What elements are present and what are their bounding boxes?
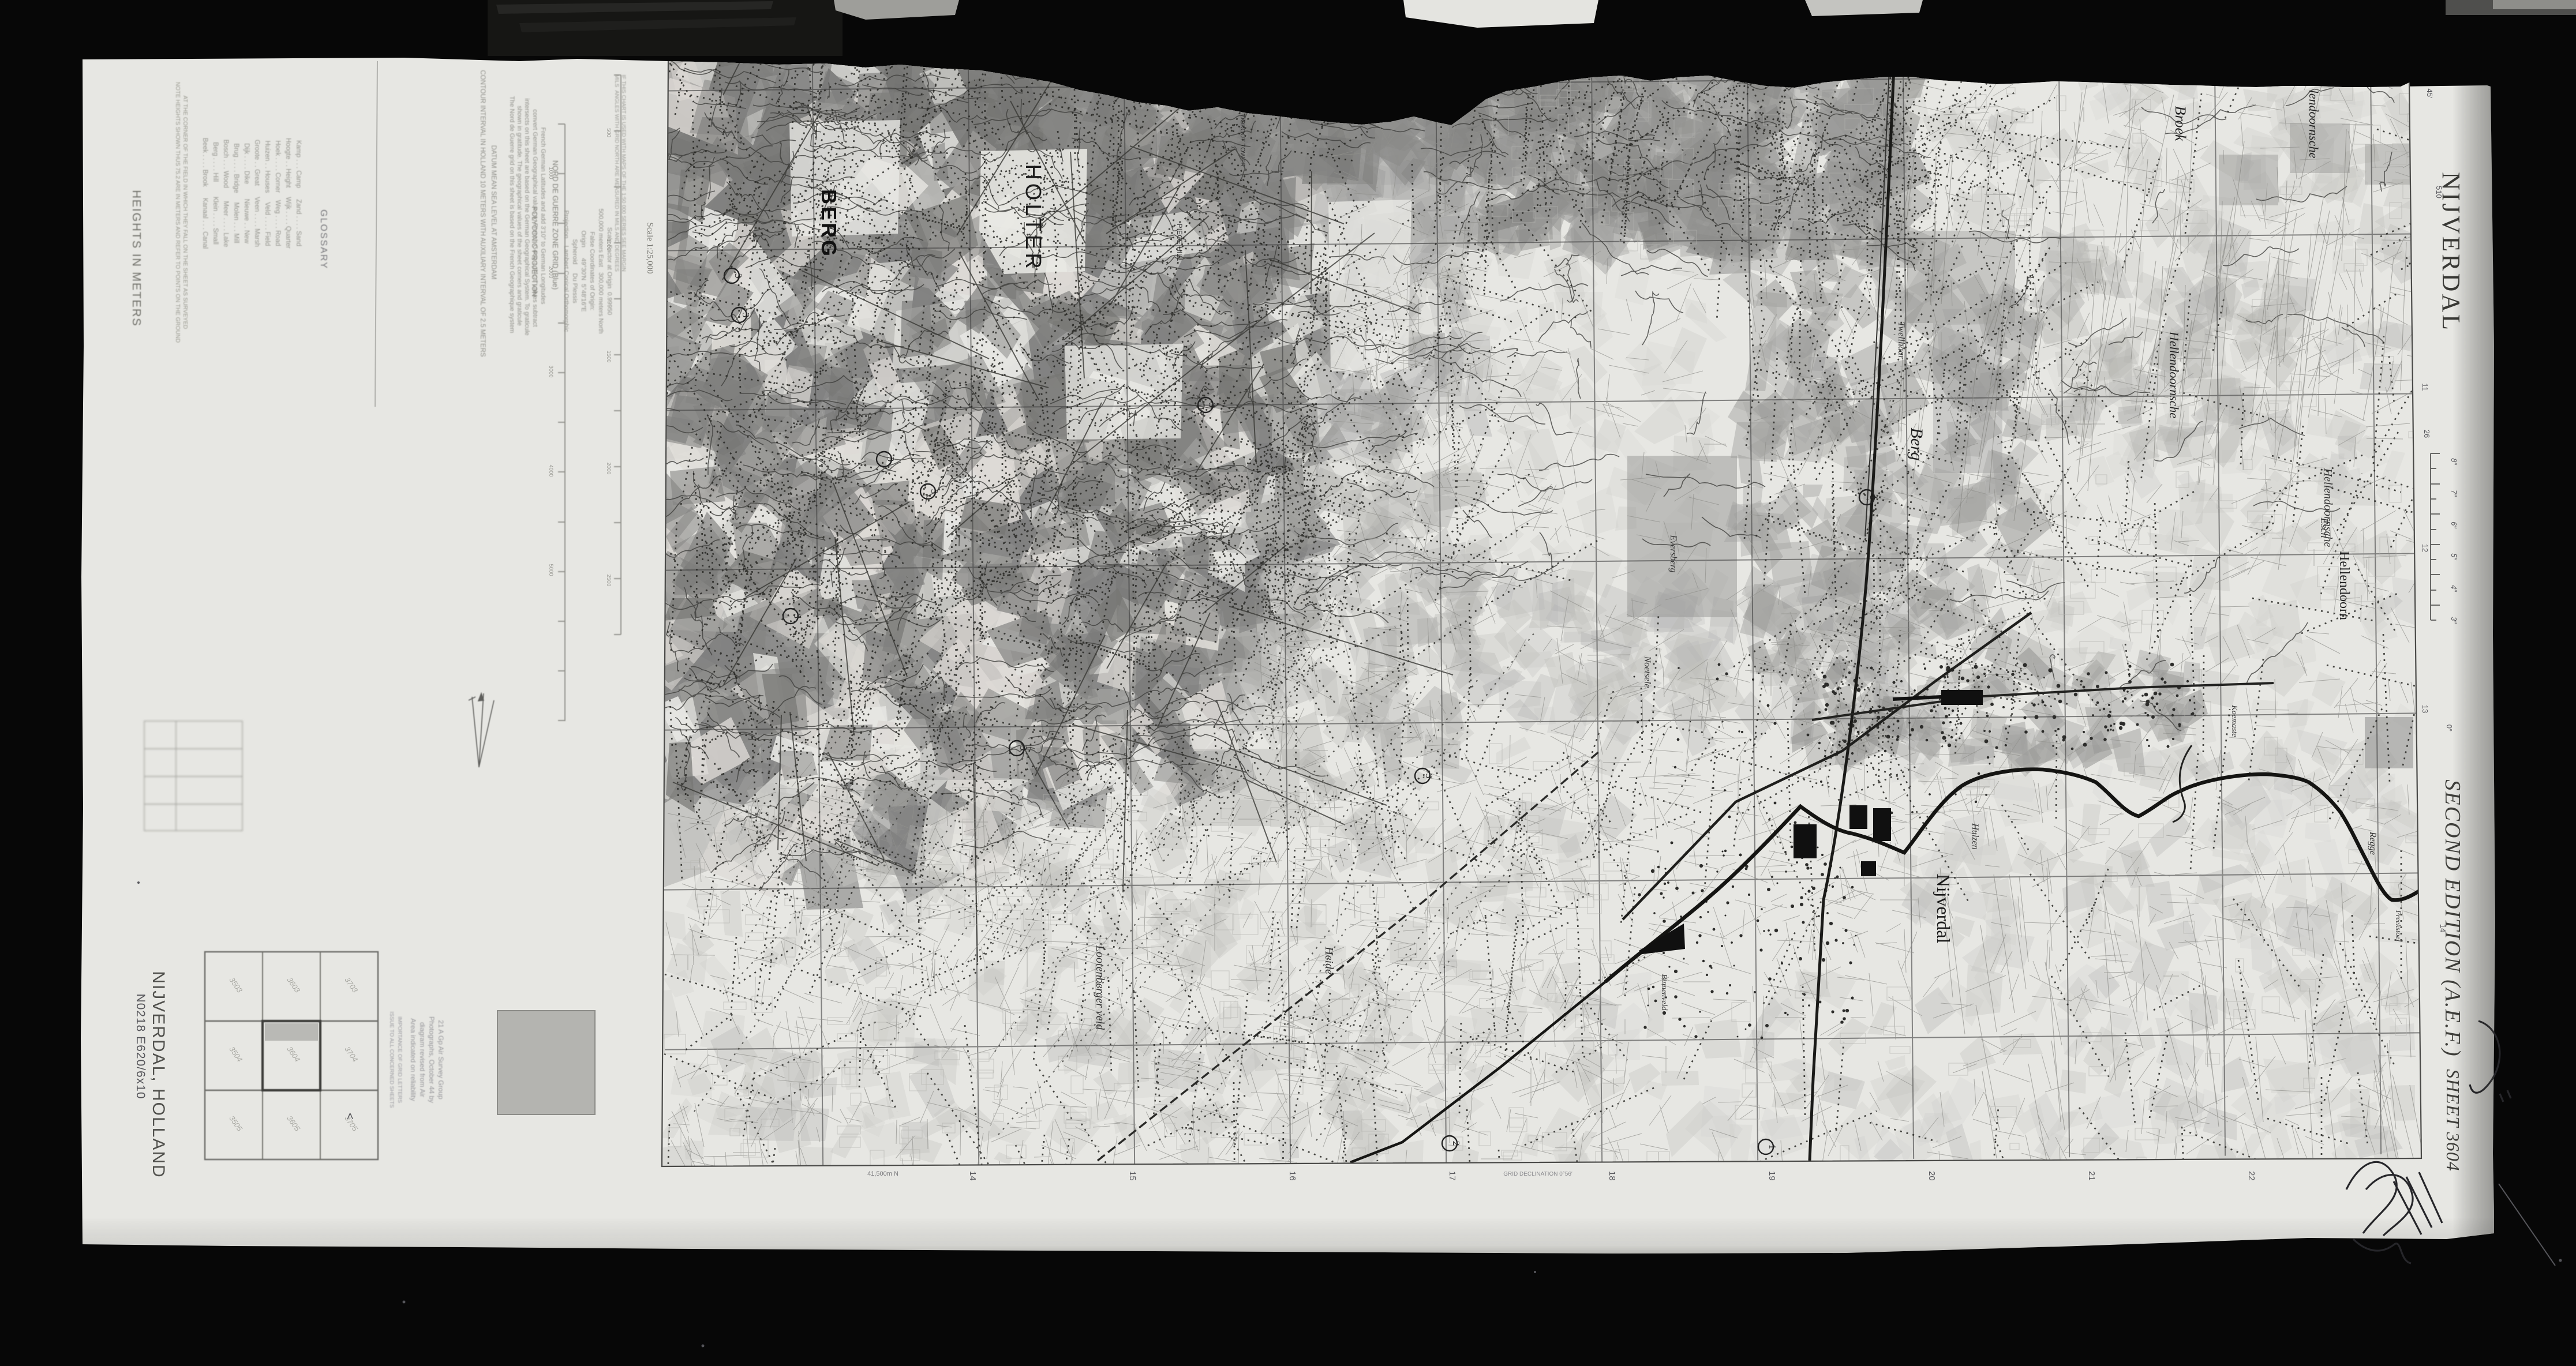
svg-text:Huizen . . Houses Veld . .: Huizen . . Houses Veld . . . . Field (264, 141, 271, 246)
svg-text:HEIGHTS IN METERS: HEIGHTS IN METERS (130, 190, 143, 327)
svg-text:1500: 1500 (605, 350, 612, 362)
svg-text:1: 1 (1868, 495, 1879, 500)
svg-text:Regge: Regge (2368, 831, 2377, 855)
svg-text:22: 22 (2246, 1171, 2256, 1181)
svg-text:17: 17 (1447, 1171, 1457, 1181)
svg-text:20: 20 (1927, 1171, 1937, 1181)
svg-text:ISSUE TO ALL CONCERNED SHEETS: ISSUE TO ALL CONCERNED SHEETS (388, 1011, 395, 1108)
svg-text:Projection Lambert Conical: Projection Lambert Conical Orthomorphic (563, 211, 570, 332)
svg-text:3000: 3000 (548, 365, 554, 377)
svg-text:BERG: BERG (817, 189, 841, 258)
svg-text:Photographs, October 44 by: Photographs, October 44 by (428, 1016, 436, 1103)
svg-text:3: 3 (1018, 746, 1029, 751)
svg-text:Berg . . . . Hill Klein: Berg . . . . Hill Klein . . . . Small (212, 142, 219, 245)
svg-text:Origin 49°30′N 5°48′16″E: Origin 49°30′N 5°48′16″E (580, 231, 587, 312)
svg-text:The Nord de Guerre grid on thi: The Nord de Guerre grid on this sheet is… (508, 96, 515, 333)
svg-text:510: 510 (2435, 186, 2443, 198)
svg-text:5000: 5000 (548, 564, 554, 576)
svg-text:Brug . . . . Bridge Molen: Brug . . . . Bridge Molen . . . Mill (233, 143, 239, 243)
svg-text:12: 12 (2421, 544, 2429, 552)
svg-text:26: 26 (2423, 430, 2431, 438)
svg-text:Koemaste: Koemaste (2230, 704, 2238, 737)
svg-text:Nijverdal: Nijverdal (1933, 874, 1954, 944)
svg-text:GLOSSARY: GLOSSARY (319, 209, 328, 269)
svg-text:4000: 4000 (548, 464, 554, 476)
svg-text:Beek . . . . Brook Kanaal: Beek . . . . Brook Kanaal . . . Canal (201, 138, 208, 249)
svg-text:41,500m N: 41,500m N (867, 1170, 898, 1177)
svg-text:Hellendoornsche: Hellendoornsche (2167, 331, 2181, 419)
svg-text:shown in gratitude. The geogra: shown in gratitude. The geographical val… (516, 106, 523, 325)
svg-text:Hellendoorn: Hellendoorn (2337, 551, 2352, 620)
svg-text:14: 14 (2439, 924, 2447, 932)
svg-text:AT THE CORNER OF THE FIELD IN: AT THE CORNER OF THE FIELD IN WHICH THEY… (182, 96, 188, 329)
svg-text:19: 19 (1767, 1171, 1777, 1181)
svg-text:21: 21 (2087, 1171, 2096, 1181)
svg-text:False Coordinates of Origin:: False Coordinates of Origin: (589, 232, 596, 311)
svg-text:Noetsele: Noetsele (1642, 655, 1652, 688)
svg-text:DATUM MEAN SEA LEVEL AT AMSTER: DATUM MEAN SEA LEVEL AT AMSTERDAM (490, 145, 497, 280)
svg-text:18: 18 (1607, 1171, 1617, 1181)
svg-text:3: 3 (1424, 774, 1435, 779)
svg-text:NOTE HEIGHTS SHOWN THUS 75.2: NOTE HEIGHTS SHOWN THUS 75.2 ARE IN METE… (174, 82, 181, 343)
svg-text:lendoornsche: lendoornsche (2307, 90, 2321, 159)
svg-text:500: 500 (605, 128, 612, 137)
svg-text:1000: 1000 (605, 238, 612, 250)
svg-text:intersects on this sheet are b: intersects on this sheet are based on th… (523, 98, 530, 335)
svg-text:HOLTER: HOLTER (1021, 164, 1045, 272)
svg-text:3: 3 (885, 457, 896, 462)
svg-text:diagram revised from Air: diagram revised from Air (418, 1022, 426, 1097)
svg-text:Preekstoel: Preekstoel (2394, 910, 2403, 942)
svg-text:11: 11 (2421, 383, 2429, 391)
svg-text:Twellhaar: Twellhaar (1896, 322, 1906, 359)
svg-text:Scale 1:25,000: Scale 1:25,000 (645, 222, 654, 273)
svg-text:2000: 2000 (605, 462, 612, 474)
svg-text:1000: 1000 (548, 167, 554, 179)
svg-text:N0218 E620/6x10: N0218 E620/6x10 (134, 993, 147, 1099)
svg-text:3: 3 (740, 313, 751, 318)
svg-text:Groote . . Great Veen . .: Groote . . Great Veen . . . . Marsh (253, 140, 260, 247)
svg-text:Lootenberger veld: Lootenberger veld (1094, 945, 1106, 1030)
svg-text:MILS ANGLES WITH GRID NORTH A: MILS ANGLES WITH GRID NORTH ARE MEASURED… (613, 74, 620, 272)
svg-text:POLYCONIC PROJECTION: POLYCONIC PROJECTION (530, 207, 538, 297)
svg-text:Heide: Heide (1323, 946, 1335, 974)
svg-text:PIECE HILL: PIECE HILL (1175, 224, 1184, 261)
svg-text:Spheroid Du Plessis: Spheroid Du Plessis (571, 239, 578, 303)
svg-text:3: 3 (792, 614, 803, 619)
svg-text:1: 1 (1767, 1144, 1778, 1150)
svg-text:Kamp . . . Camp Zand . .: Kamp . . . Camp Zand . . . . Sand (295, 140, 302, 246)
svg-text:21 A Gp Air Survey Group: 21 A Gp Air Survey Group (437, 1020, 445, 1099)
svg-text:2500: 2500 (605, 574, 612, 586)
svg-text:14: 14 (968, 1171, 978, 1181)
svg-text:3: 3 (1207, 403, 1218, 408)
svg-text:2000: 2000 (548, 266, 554, 278)
svg-text:French German Latitudes and ad: French German Latitudes and add 3′10″ to… (540, 127, 546, 305)
svg-text:Dijk . . . . Dike Nieuw: Dijk . . . . Dike Nieuwe . . New (243, 143, 250, 244)
svg-text:IMPORTANCE OF GRID LETTERS: IMPORTANCE OF GRID LETTERS (396, 1016, 403, 1103)
svg-text:Hoogte . . Height Wijk . .: Hoogte . . Height Wijk . . . . Quarter (284, 138, 291, 249)
svg-text:Berg: Berg (1907, 427, 1926, 460)
svg-text:15: 15 (1128, 1171, 1137, 1181)
svg-text:500,000 meters East 300,000: 500,000 meters East 300,000 meters North (597, 208, 604, 333)
svg-text:2: 2 (1451, 1141, 1462, 1146)
svg-text:Broek: Broek (2172, 106, 2189, 141)
svg-text:0°: 0° (2445, 725, 2454, 731)
svg-text:Binnenveld: Binnenveld (1660, 974, 1668, 1011)
svg-text:CONTOUR INTERVAL IN HOLLAND 10: CONTOUR INTERVAL IN HOLLAND 10 METERS WI… (479, 70, 486, 357)
svg-text:45′: 45′ (2425, 89, 2434, 99)
svg-text:NIJVERDAL, HOLLAND: NIJVERDAL, HOLLAND (149, 971, 168, 1178)
svg-text:Esch: Esch (2319, 517, 2330, 538)
svg-text:Eversberg: Eversberg (1668, 534, 1678, 572)
svg-text:Area indicated on reliability: Area indicated on reliability (409, 1018, 417, 1101)
svg-text:GRID DECLINATION 0°56′: GRID DECLINATION 0°56′ (1503, 1171, 1572, 1177)
svg-text:<: < (343, 1113, 356, 1120)
svg-text:16: 16 (1287, 1171, 1297, 1181)
svg-text:3: 3 (929, 489, 940, 494)
svg-text:13: 13 (2421, 705, 2429, 713)
svg-text:Hulzen: Hulzen (1970, 823, 1980, 849)
svg-text:Bosch . . . Wood Meer .: Bosch . . . Wood Meer . . . . Lake (222, 140, 229, 247)
svg-text:Hoek . . . . Corner Weg . .: Hoek . . . . Corner Weg . . . . Road (274, 140, 281, 246)
svg-text:3: 3 (733, 273, 744, 279)
